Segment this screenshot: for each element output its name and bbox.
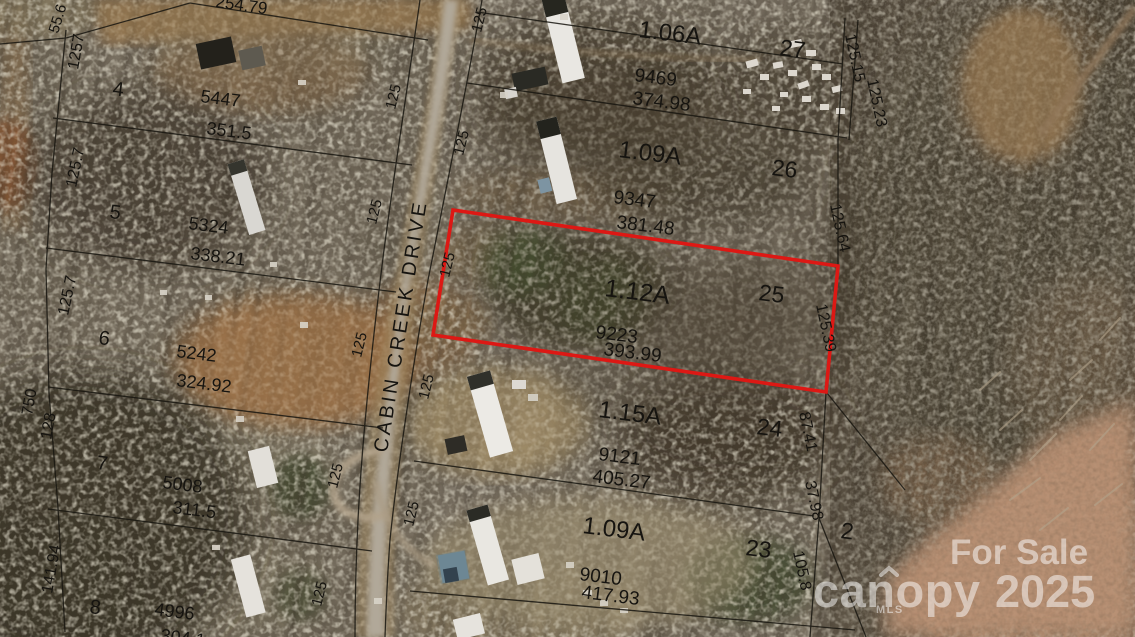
svg-text:MLS: MLS [876,604,904,616]
svg-text:2025: 2025 [995,566,1095,617]
svg-text:24: 24 [755,413,784,442]
svg-text:27: 27 [778,34,807,63]
svg-text:25: 25 [757,279,786,308]
svg-text:26: 26 [770,154,799,183]
svg-text:23: 23 [744,534,773,563]
